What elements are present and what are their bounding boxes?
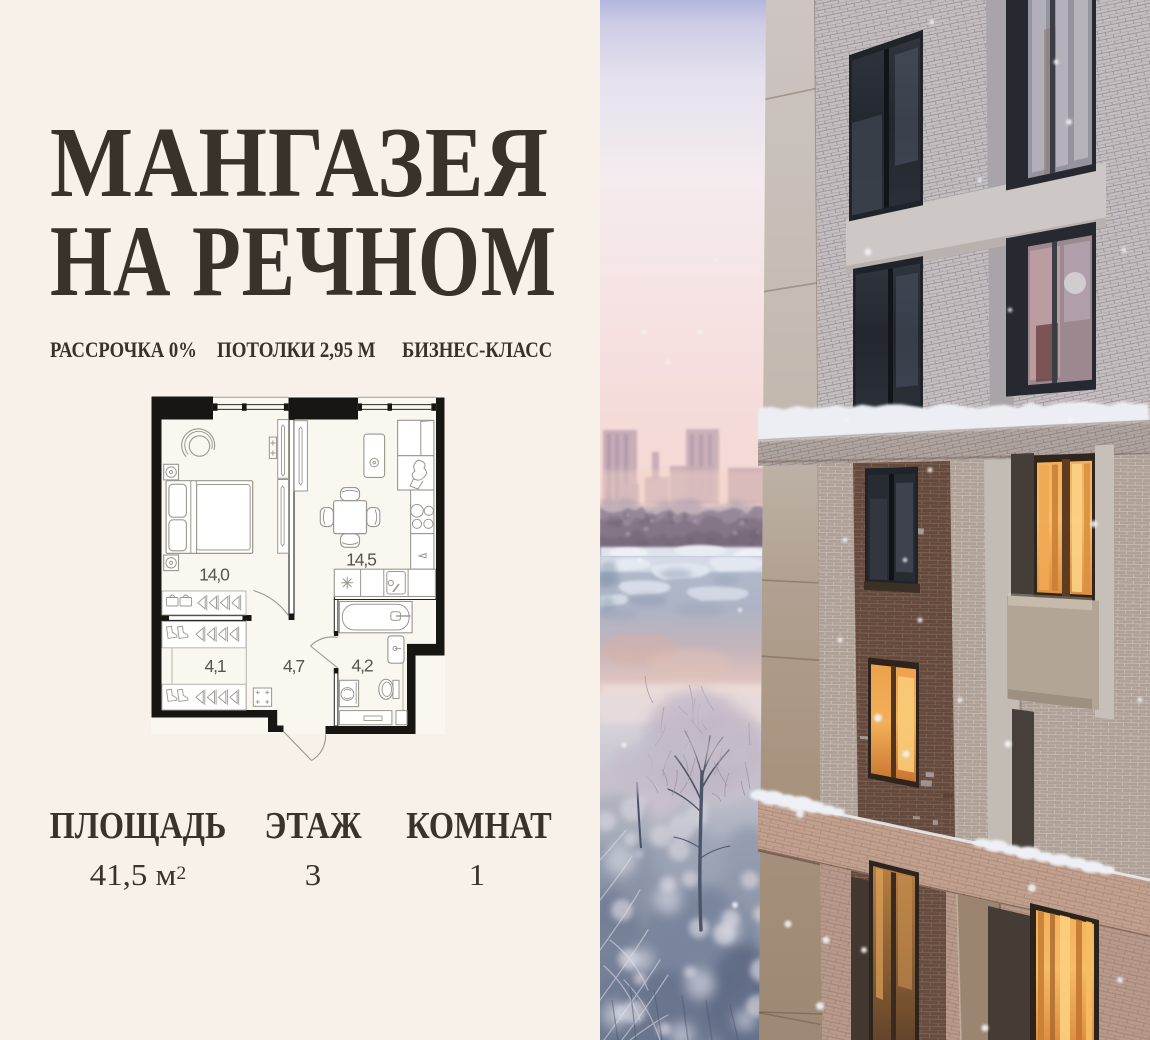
svg-text:4,7: 4,7: [283, 656, 304, 676]
svg-text:4,2: 4,2: [351, 656, 372, 676]
svg-text:14,5: 14,5: [346, 550, 376, 570]
svg-text:14,0: 14,0: [199, 565, 230, 585]
svg-text:4,1: 4,1: [204, 656, 225, 676]
